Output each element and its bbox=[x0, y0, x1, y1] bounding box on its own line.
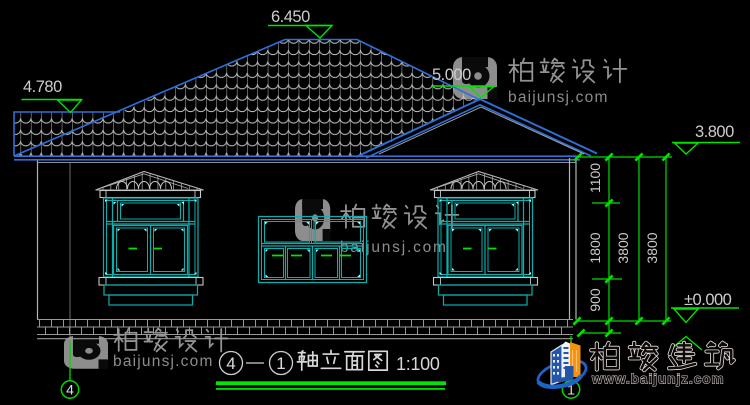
svg-text:5.000: 5.000 bbox=[432, 66, 471, 84]
svg-text:1100: 1100 bbox=[587, 163, 603, 193]
svg-text:www.baijunjz.com: www.baijunjz.com bbox=[591, 372, 725, 387]
svg-text:4.780: 4.780 bbox=[23, 78, 62, 96]
svg-text:6.450: 6.450 bbox=[271, 8, 310, 26]
svg-text:3800: 3800 bbox=[644, 232, 660, 263]
svg-text:1: 1 bbox=[276, 354, 285, 373]
svg-text:900: 900 bbox=[587, 288, 603, 312]
svg-text:1:100: 1:100 bbox=[396, 354, 440, 374]
svg-text:3.800: 3.800 bbox=[695, 123, 734, 141]
svg-text:±0.000: ±0.000 bbox=[684, 291, 732, 309]
svg-text:3800: 3800 bbox=[615, 232, 631, 263]
svg-text:1800: 1800 bbox=[587, 232, 603, 263]
svg-text:4: 4 bbox=[226, 354, 235, 373]
svg-text:baijunsj.com: baijunsj.com bbox=[113, 353, 214, 370]
svg-text:4: 4 bbox=[66, 382, 74, 398]
